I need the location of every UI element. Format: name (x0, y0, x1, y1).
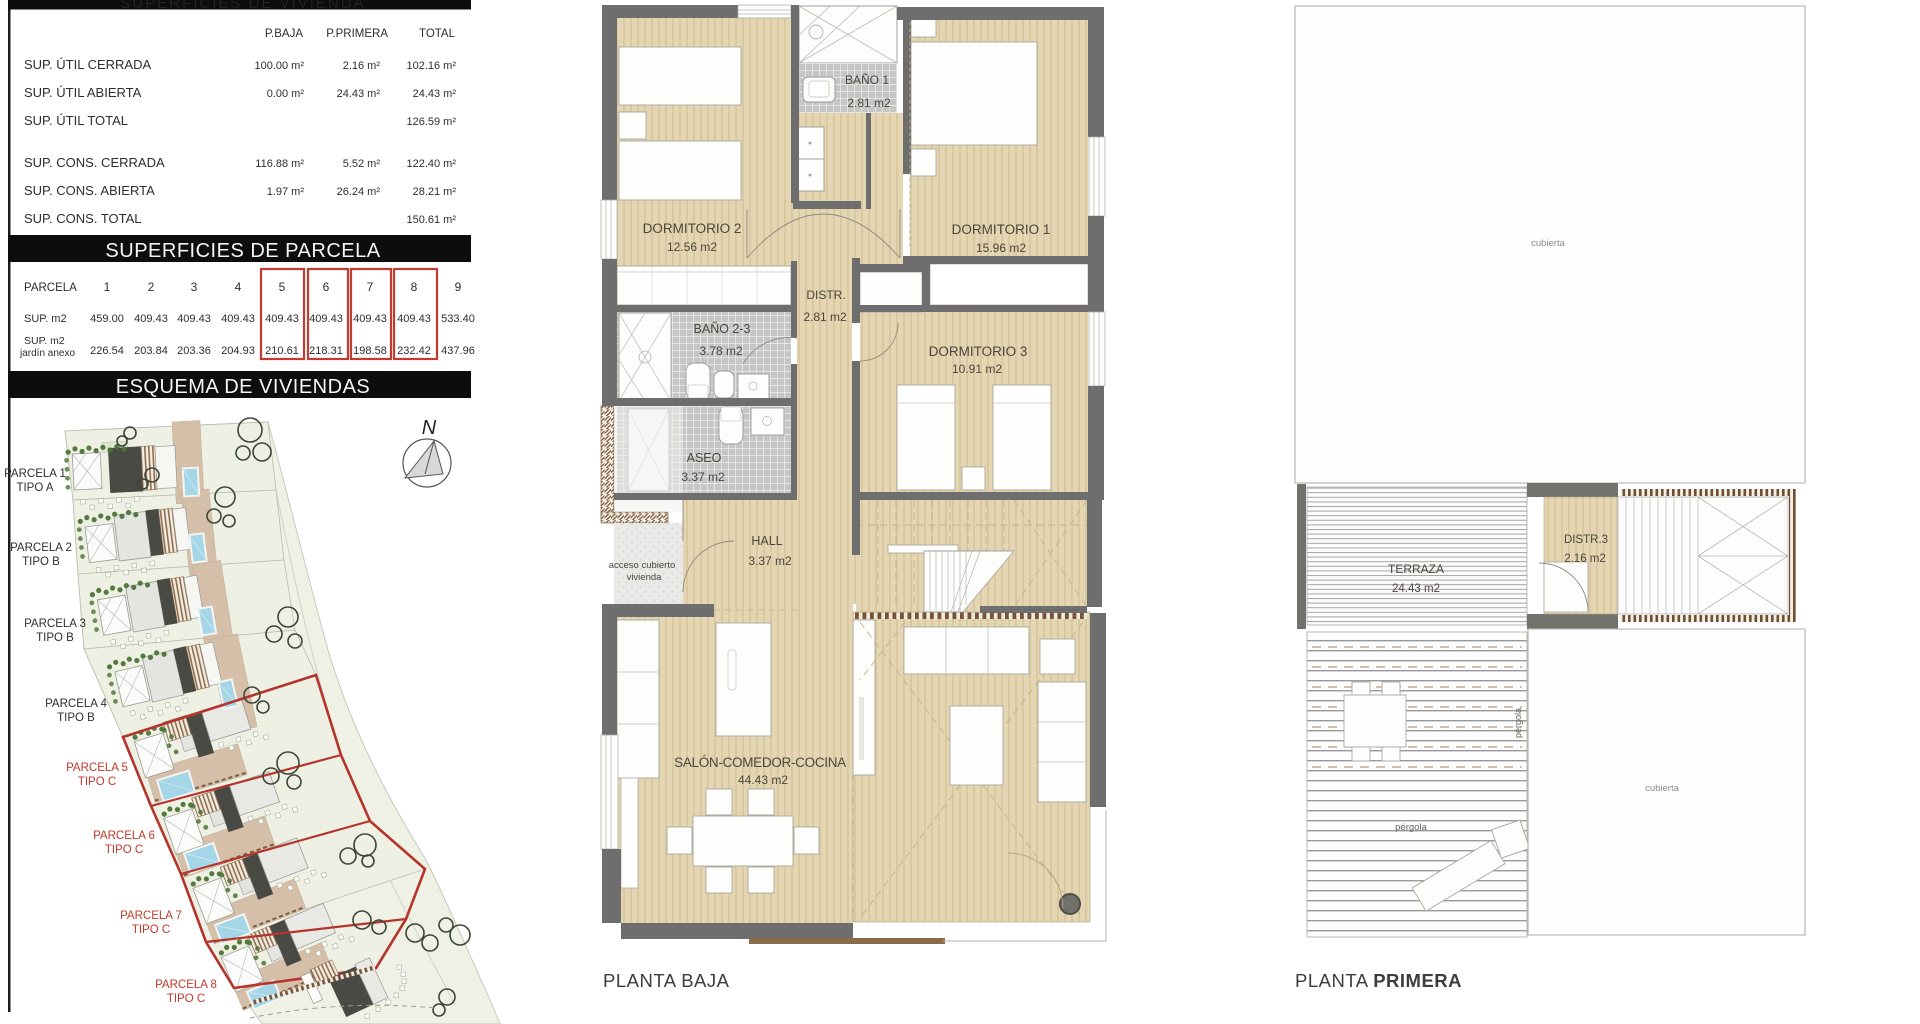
svg-text:226.54: 226.54 (90, 345, 124, 357)
svg-text:TIPO A: TIPO A (16, 482, 53, 494)
svg-text:203.84: 203.84 (134, 345, 168, 357)
svg-text:533.40: 533.40 (441, 313, 475, 325)
svg-text:409.43: 409.43 (177, 313, 211, 325)
svg-text:44.43 m2: 44.43 m2 (738, 773, 788, 787)
svg-text:vivienda: vivienda (627, 572, 663, 583)
svg-text:SUP. CONS. ABIERTA: SUP. CONS. ABIERTA (24, 183, 155, 198)
svg-text:jardín anexo: jardín anexo (19, 348, 75, 359)
svg-text:TIPO B: TIPO B (36, 632, 74, 644)
svg-text:459.00: 459.00 (90, 313, 124, 325)
svg-text:409.43: 409.43 (265, 313, 299, 325)
svg-text:pérgola: pérgola (1395, 822, 1427, 833)
svg-text:P.PRIMERA: P.PRIMERA (326, 28, 388, 40)
svg-text:TIPO C: TIPO C (167, 993, 205, 1005)
svg-text:PARCELA 6: PARCELA 6 (93, 830, 155, 842)
svg-text:SUP. ÚTIL TOTAL: SUP. ÚTIL TOTAL (24, 113, 128, 128)
svg-text:116.88 m²: 116.88 m² (255, 158, 304, 170)
svg-text:4: 4 (235, 280, 242, 294)
svg-text:SUP. CONS. TOTAL: SUP. CONS. TOTAL (24, 211, 142, 226)
svg-text:3.78 m2: 3.78 m2 (699, 344, 743, 358)
svg-text:28.21 m²: 28.21 m² (413, 186, 457, 198)
svg-text:0.00 m²: 0.00 m² (267, 88, 305, 100)
svg-text:pérgola: pérgola (1513, 708, 1523, 738)
svg-text:102.16 m²: 102.16 m² (406, 60, 456, 72)
svg-text:PARCELA 8: PARCELA 8 (155, 979, 217, 991)
svg-text:P.BAJA: P.BAJA (265, 28, 303, 40)
svg-text:BAÑO 1: BAÑO 1 (845, 73, 889, 87)
svg-text:ESQUEMA DE VIVIENDAS: ESQUEMA DE VIVIENDAS (116, 376, 371, 398)
svg-text:2.81 m2: 2.81 m2 (847, 96, 891, 110)
svg-text:3.37 m2: 3.37 m2 (681, 470, 725, 484)
svg-text:PARCELA 5: PARCELA 5 (66, 762, 128, 774)
svg-text:204.93: 204.93 (221, 345, 255, 357)
svg-text:2.16 m²: 2.16 m² (343, 60, 381, 72)
svg-text:TIPO C: TIPO C (105, 844, 143, 856)
svg-text:PARCELA 4: PARCELA 4 (45, 698, 107, 710)
svg-text:BAÑO 2-3: BAÑO 2-3 (694, 322, 751, 336)
svg-text:SUP. ÚTIL CERRADA: SUP. ÚTIL CERRADA (24, 57, 151, 72)
svg-text:SUP. m2: SUP. m2 (24, 313, 67, 325)
svg-text:1.97 m²: 1.97 m² (267, 186, 305, 198)
svg-text:122.40 m²: 122.40 m² (406, 158, 456, 170)
svg-text:9: 9 (455, 280, 462, 294)
svg-text:409.43: 409.43 (134, 313, 168, 325)
svg-text:DORMITORIO 3: DORMITORIO 3 (929, 344, 1028, 359)
svg-text:5: 5 (279, 280, 286, 294)
svg-text:PARCELA 1: PARCELA 1 (4, 468, 66, 480)
svg-text:3.37 m2: 3.37 m2 (748, 554, 792, 568)
svg-text:TOTAL: TOTAL (419, 28, 456, 40)
svg-text:PARCELA 3: PARCELA 3 (24, 618, 86, 630)
svg-text:DISTR.3: DISTR.3 (1564, 534, 1608, 546)
svg-text:15.96 m2: 15.96 m2 (976, 241, 1026, 255)
svg-text:cubierta: cubierta (1531, 238, 1566, 249)
svg-text:150.61 m²: 150.61 m² (406, 214, 456, 226)
svg-text:26.24 m²: 26.24 m² (337, 186, 381, 198)
svg-text:210.61: 210.61 (265, 345, 299, 357)
svg-text:DISTR.: DISTR. (806, 288, 845, 302)
svg-text:acceso cubierto: acceso cubierto (609, 560, 676, 571)
svg-text:126.59 m²: 126.59 m² (406, 116, 456, 128)
svg-text:24.43 m²: 24.43 m² (337, 88, 381, 100)
svg-text:218.31: 218.31 (309, 345, 343, 357)
svg-text:PLANTA BAJA: PLANTA BAJA (603, 970, 730, 991)
svg-text:6: 6 (323, 280, 330, 294)
svg-text:12.56 m2: 12.56 m2 (667, 240, 717, 254)
svg-text:2.81 m2: 2.81 m2 (803, 310, 847, 324)
svg-text:TIPO C: TIPO C (78, 776, 116, 788)
svg-text:1: 1 (104, 280, 111, 294)
svg-text:409.43: 409.43 (397, 313, 431, 325)
svg-text:TERRAZA: TERRAZA (1388, 562, 1444, 576)
svg-text:SUP. CONS. CERRADA: SUP. CONS. CERRADA (24, 155, 165, 170)
svg-text:2.16 m2: 2.16 m2 (1564, 553, 1606, 565)
svg-text:409.43: 409.43 (353, 313, 387, 325)
svg-text:TIPO B: TIPO B (22, 556, 60, 568)
svg-text:N: N (422, 417, 437, 439)
svg-text:SUPERFICIES DE PARCELA: SUPERFICIES DE PARCELA (105, 240, 380, 262)
svg-text:8: 8 (411, 280, 418, 294)
svg-text:3: 3 (191, 280, 198, 294)
svg-text:PARCELA: PARCELA (24, 282, 77, 294)
svg-text:10.91 m2: 10.91 m2 (952, 362, 1002, 376)
svg-text:ASEO: ASEO (687, 451, 722, 465)
svg-text:232.42: 232.42 (397, 345, 431, 357)
svg-text:DORMITORIO 1: DORMITORIO 1 (952, 222, 1051, 237)
svg-text:PARCELA 2: PARCELA 2 (10, 542, 72, 554)
svg-text:SUP. m2: SUP. m2 (24, 335, 65, 347)
svg-text:SUP. ÚTIL ABIERTA: SUP. ÚTIL ABIERTA (24, 85, 142, 100)
svg-text:409.43: 409.43 (221, 313, 255, 325)
svg-text:SALÓN-COMEDOR-COCINA: SALÓN-COMEDOR-COCINA (674, 755, 846, 770)
svg-text:TIPO C: TIPO C (132, 924, 170, 936)
svg-text:24.43 m²: 24.43 m² (413, 88, 457, 100)
svg-text:203.36: 203.36 (177, 345, 211, 357)
svg-text:7: 7 (367, 280, 374, 294)
svg-text:PARCELA 7: PARCELA 7 (120, 910, 182, 922)
svg-text:PLANTA PRIMERA: PLANTA PRIMERA (1295, 970, 1462, 991)
svg-text:24.43 m2: 24.43 m2 (1392, 583, 1440, 595)
svg-text:100.00 m²: 100.00 m² (254, 60, 304, 72)
svg-text:437.96: 437.96 (441, 345, 475, 357)
svg-text:SUPERFICIES DE VIVIENDA: SUPERFICIES DE VIVIENDA (120, 0, 365, 12)
svg-text:409.43: 409.43 (309, 313, 343, 325)
svg-text:TIPO B: TIPO B (57, 712, 95, 724)
svg-text:cubierta: cubierta (1645, 783, 1680, 794)
svg-text:5.52 m²: 5.52 m² (343, 158, 381, 170)
svg-text:DORMITORIO 2: DORMITORIO 2 (643, 221, 742, 236)
svg-text:2: 2 (148, 280, 155, 294)
svg-text:HALL: HALL (751, 534, 782, 548)
svg-text:198.58: 198.58 (353, 345, 387, 357)
